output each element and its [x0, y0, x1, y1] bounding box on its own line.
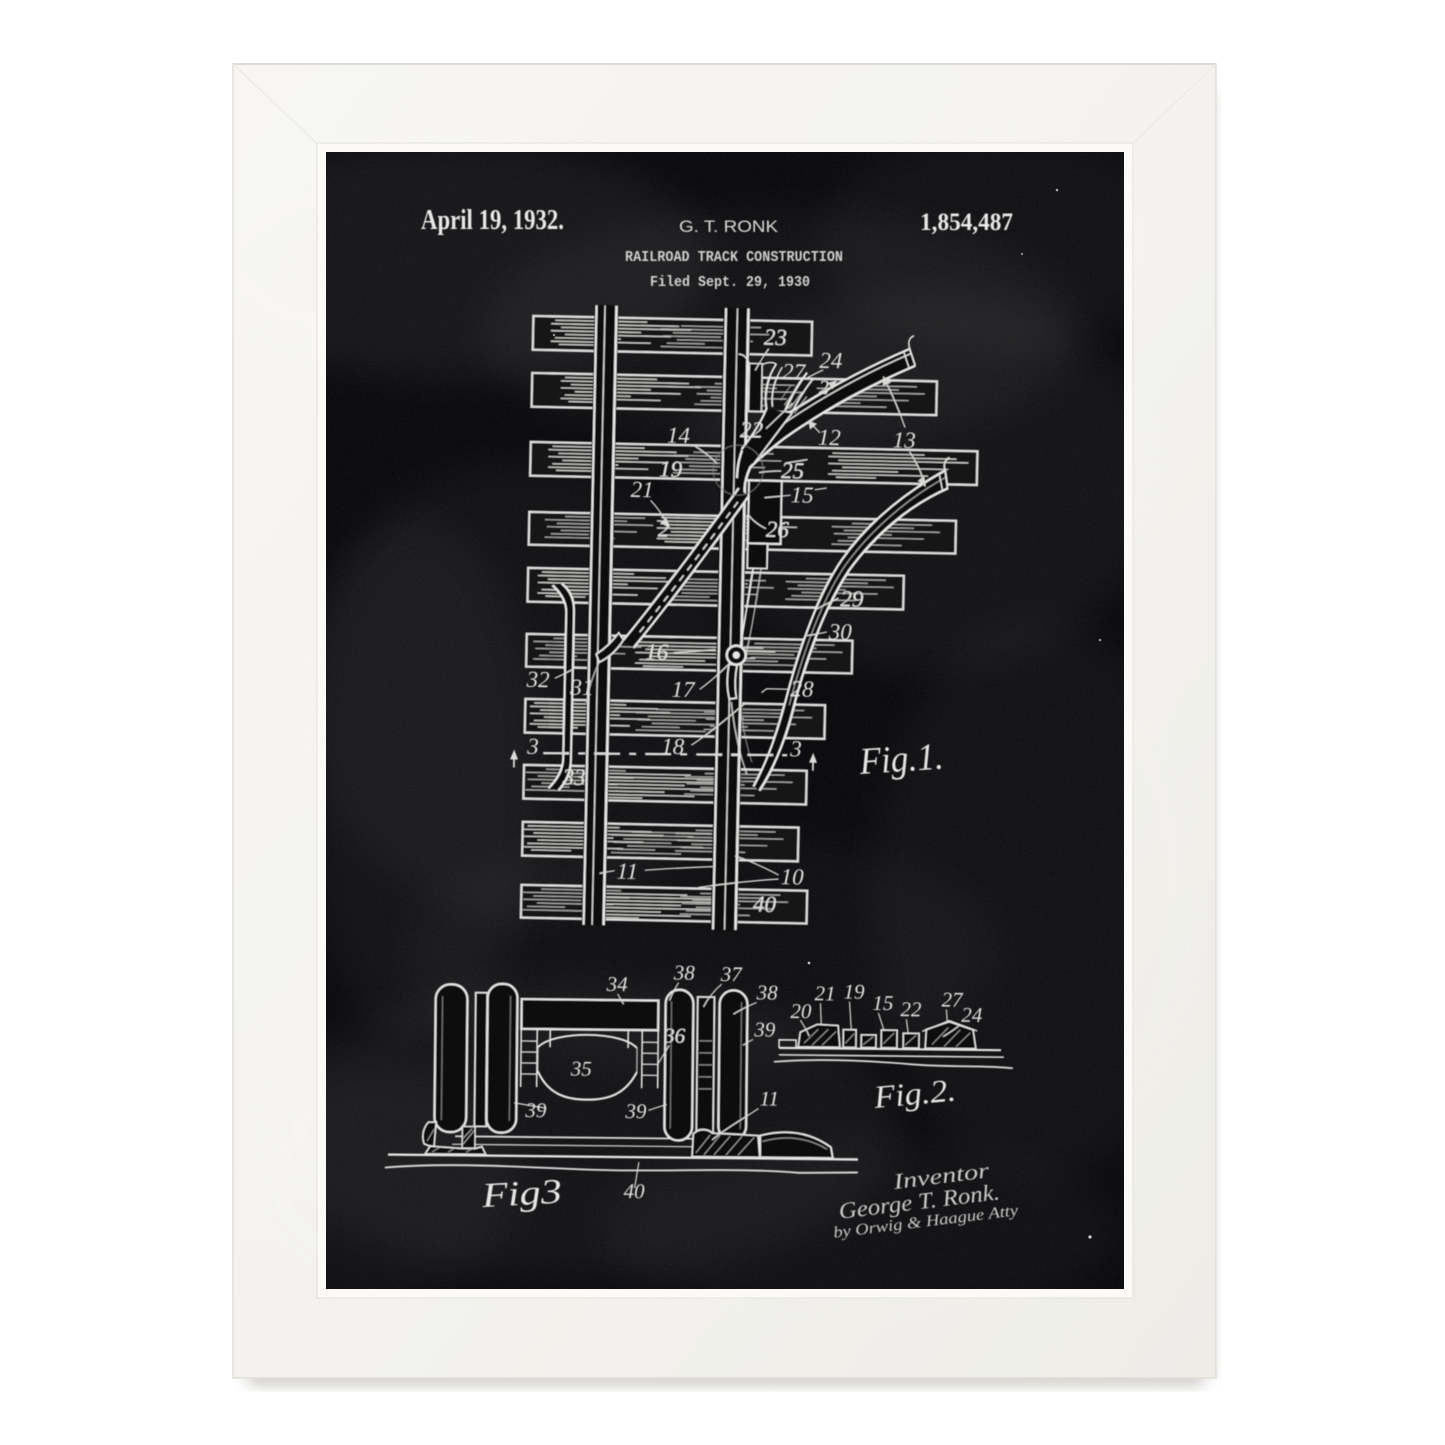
- svg-text:21: 21: [630, 477, 654, 502]
- svg-text:14: 14: [667, 423, 691, 448]
- svg-text:22: 22: [740, 417, 764, 442]
- svg-text:35: 35: [570, 1056, 592, 1080]
- svg-text:12: 12: [818, 425, 842, 450]
- svg-text:39: 39: [753, 1017, 776, 1041]
- svg-text:40: 40: [623, 1179, 645, 1203]
- svg-text:20: 20: [790, 999, 812, 1023]
- svg-text:19: 19: [659, 456, 683, 481]
- svg-text:21: 21: [814, 981, 835, 1005]
- svg-text:32: 32: [525, 667, 550, 692]
- svg-text:11: 11: [759, 1086, 779, 1110]
- svg-text:10: 10: [780, 864, 804, 889]
- svg-text:29: 29: [840, 586, 864, 611]
- svg-text:April 19, 1932.: April 19, 1932.: [421, 205, 564, 236]
- svg-text:Fig3: Fig3: [480, 1171, 563, 1215]
- svg-text:24: 24: [961, 1003, 983, 1027]
- svg-text:19: 19: [843, 980, 865, 1004]
- svg-text:11: 11: [616, 859, 638, 884]
- svg-text:37: 37: [720, 962, 744, 986]
- svg-text:Filed Sept. 29, 1930: Filed Sept. 29, 1930: [650, 275, 810, 291]
- svg-text:3: 3: [789, 736, 802, 761]
- svg-text:38: 38: [756, 980, 779, 1004]
- svg-text:Fig.1.: Fig.1.: [857, 736, 945, 784]
- svg-text:23: 23: [764, 325, 788, 350]
- svg-text:36: 36: [663, 1023, 686, 1047]
- svg-text:40: 40: [753, 892, 777, 917]
- svg-text:33: 33: [561, 765, 586, 790]
- svg-text:39: 39: [624, 1099, 647, 1123]
- svg-text:13: 13: [893, 427, 917, 452]
- svg-text:1,854,487: 1,854,487: [920, 209, 1013, 236]
- svg-text:28: 28: [790, 676, 814, 701]
- svg-text:2: 2: [819, 377, 829, 399]
- svg-text:15: 15: [790, 482, 814, 507]
- svg-text:30: 30: [828, 619, 853, 645]
- svg-text:26: 26: [766, 517, 790, 542]
- svg-text:16: 16: [645, 639, 669, 664]
- svg-text:2: 2: [658, 516, 670, 541]
- svg-text:RAILROAD TRACK CONSTRUCTION: RAILROAD TRACK CONSTRUCTION: [625, 250, 843, 266]
- svg-text:15: 15: [872, 991, 893, 1015]
- svg-text:34: 34: [606, 972, 629, 996]
- svg-text:3: 3: [526, 734, 539, 759]
- svg-text:18: 18: [661, 734, 685, 759]
- svg-text:17: 17: [671, 677, 696, 703]
- svg-text:22: 22: [900, 997, 922, 1021]
- svg-text:39: 39: [524, 1098, 547, 1122]
- svg-text:G. T. RONK: G. T. RONK: [679, 218, 778, 236]
- svg-text:27: 27: [782, 359, 807, 385]
- svg-text:31: 31: [569, 675, 594, 700]
- svg-text:38: 38: [673, 961, 696, 985]
